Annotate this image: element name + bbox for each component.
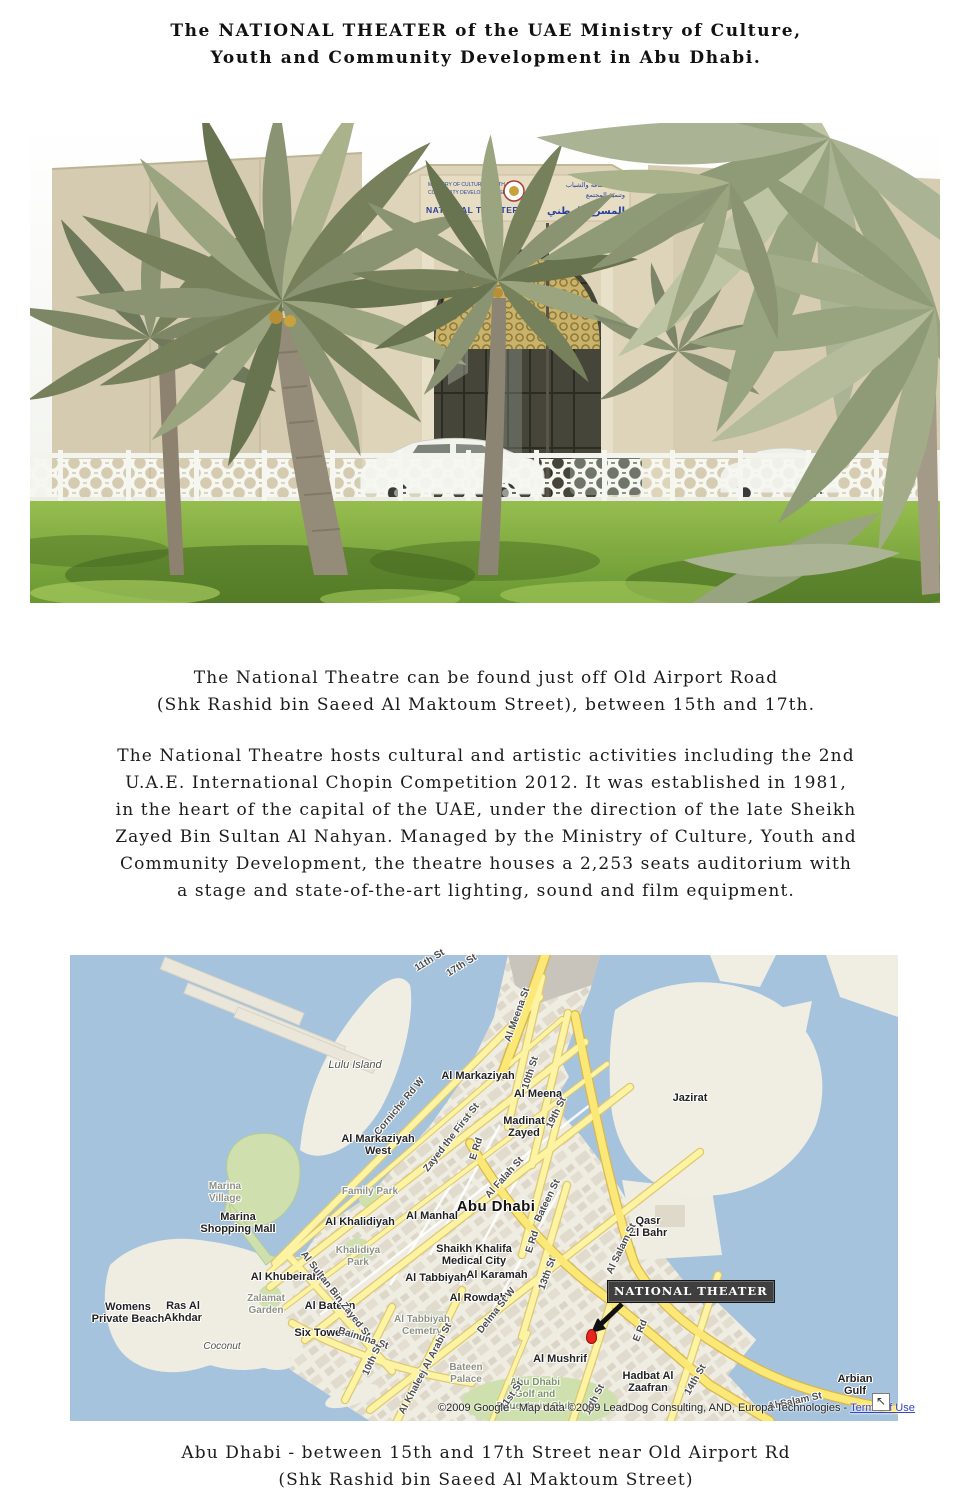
map-label-14th-st: 14th St	[682, 1363, 709, 1398]
caption-line-1: Abu Dhabi - between 15th and 17th Street…	[0, 1440, 972, 1467]
map-label-al-mushrif: Al Mushrif	[533, 1353, 587, 1365]
page-title: The NATIONAL THEATER of the UAE Ministry…	[0, 18, 972, 72]
map-label-corniche-rd-w: Corniche Rd W	[372, 1076, 427, 1139]
map-label-al-khubeirah: Al Khubeirah	[251, 1271, 319, 1283]
map-label-al-markaziyah: Al Markaziyah	[441, 1070, 514, 1082]
map-label-lulu-island: Lulu Island	[328, 1059, 381, 1071]
map-label-bateen-st: Bateen St	[532, 1178, 563, 1225]
body-line-2: U.A.E. International Chopin Competition …	[0, 770, 972, 797]
map-label-10th-st: 10th St	[520, 1055, 542, 1090]
map-label-jazirat: Jazirat	[673, 1092, 708, 1104]
map-label-al-meena: Al Meena	[514, 1088, 562, 1100]
map-label-e-rd: E Rd	[524, 1229, 542, 1254]
map-label-hadbat-al-zaafran: Hadbat Al Zaafran	[623, 1370, 674, 1394]
map-label-17th-st: 17th St	[445, 952, 480, 980]
map-label-19th-st: 19th St	[544, 1095, 569, 1130]
map-label-e-rd: E Rd	[468, 1136, 486, 1161]
map-label-al-manhal: Al Manhal	[406, 1210, 458, 1222]
map-caption: Abu Dhabi - between 15th and 17th Street…	[0, 1440, 972, 1494]
map-label-family-park: Family Park	[342, 1186, 398, 1198]
map-label-madinat-zayed: Madinat Zayed	[503, 1115, 545, 1139]
body-line-6: a stage and state-of-the-art lighting, s…	[0, 878, 972, 905]
map-label-khalidiya-park: Khalidiya Park	[336, 1245, 380, 1269]
map-label-bateen-palace: Bateen Palace	[449, 1362, 482, 1386]
body-line-1: The National Theatre hosts cultural and …	[0, 743, 972, 770]
body-line-3: in the heart of the capital of the UAE, …	[0, 797, 972, 824]
theater-map-label: NATIONAL THEATER	[607, 1280, 775, 1303]
body-paragraph: The National Theatre hosts cultural and …	[0, 743, 972, 905]
map-copyright: ©2009 Google - Map data ©2009 LeadDog Co…	[438, 1402, 915, 1414]
map-label-marina-village: Marina Village	[209, 1181, 241, 1205]
map-label-e-rd: E Rd	[631, 1318, 651, 1344]
map-label-womens-private-beach: Womens Private Beach	[92, 1301, 165, 1325]
map-label-zalamat-garden: Zalamat Garden	[247, 1293, 285, 1317]
map-label-ras-al-akhdar: Ras Al Akhdar	[164, 1300, 202, 1324]
intro-paragraph: The National Theatre can be found just o…	[0, 665, 972, 719]
body-line-4: Zayed Bin Sultan Al Nahyan. Managed by t…	[0, 824, 972, 851]
map-label-al-falah-st: Al Falah St	[483, 1155, 527, 1201]
theater-location-marker	[586, 1329, 597, 1344]
map-label-al-khalidiyah: Al Khalidiyah	[325, 1216, 395, 1228]
expand-icon: ↖	[876, 1394, 886, 1408]
map-label-shaikh-khalifa-medical-city: Shaikh Khalifa Medical City	[436, 1243, 512, 1267]
map-label-13th-st: 13th St	[537, 1256, 560, 1291]
map-label-marina-shopping-mall: Marina Shopping Mall	[200, 1211, 275, 1235]
map-label-11th-st: 11th St	[413, 947, 447, 975]
map-label-10th-st: 10th St	[361, 1342, 386, 1377]
abu-dhabi-map: Lulu IslandJaziratAl MarkaziyahAl MeenaM…	[70, 955, 898, 1421]
map-label-al-salam-st: Al Salam St	[605, 1222, 640, 1277]
body-line-5: Community Development, the theatre house…	[0, 851, 972, 878]
map-label-arbian-gulf: Arbian Gulf	[834, 1373, 877, 1397]
uae-emblem	[504, 181, 524, 201]
map-label-coconut: Coconut	[203, 1341, 240, 1353]
map-copyright-text: ©2009 Google - Map data ©2009 LeadDog Co…	[438, 1402, 850, 1414]
page-title-line-1: The NATIONAL THEATER of the UAE Ministry…	[0, 18, 972, 45]
date-cluster	[269, 310, 283, 324]
map-label-al-tabbiyah: Al Tabbiyah	[405, 1272, 467, 1284]
intro-line-2: (Shk Rashid bin Saeed Al Maktoum Street)…	[0, 692, 972, 719]
map-overlay: Lulu IslandJaziratAl MarkaziyahAl MeenaM…	[70, 955, 898, 1421]
theater-photo: MINISTRY OF CULTURE, YOUTH & COMMUNITY D…	[30, 123, 940, 603]
article-page: The NATIONAL THEATER of the UAE Ministry…	[0, 0, 972, 1508]
map-label-al-markaziyah-west: Al Markaziyah West	[341, 1133, 414, 1157]
intro-line-1: The National Theatre can be found just o…	[0, 665, 972, 692]
map-expand-button[interactable]: ↖	[872, 1393, 890, 1411]
page-title-line-2: Youth and Community Development in Abu D…	[0, 45, 972, 72]
theater-photo-canvas: MINISTRY OF CULTURE, YOUTH & COMMUNITY D…	[30, 123, 940, 603]
map-label-al-karamah: Al Karamah	[466, 1269, 527, 1281]
caption-line-2: (Shk Rashid bin Saeed Al Maktoum Street)	[0, 1467, 972, 1494]
map-label-abu-dhabi: Abu Dhabi	[457, 1201, 536, 1213]
map-label-al-meena-st: Al Meena St	[503, 986, 534, 1043]
